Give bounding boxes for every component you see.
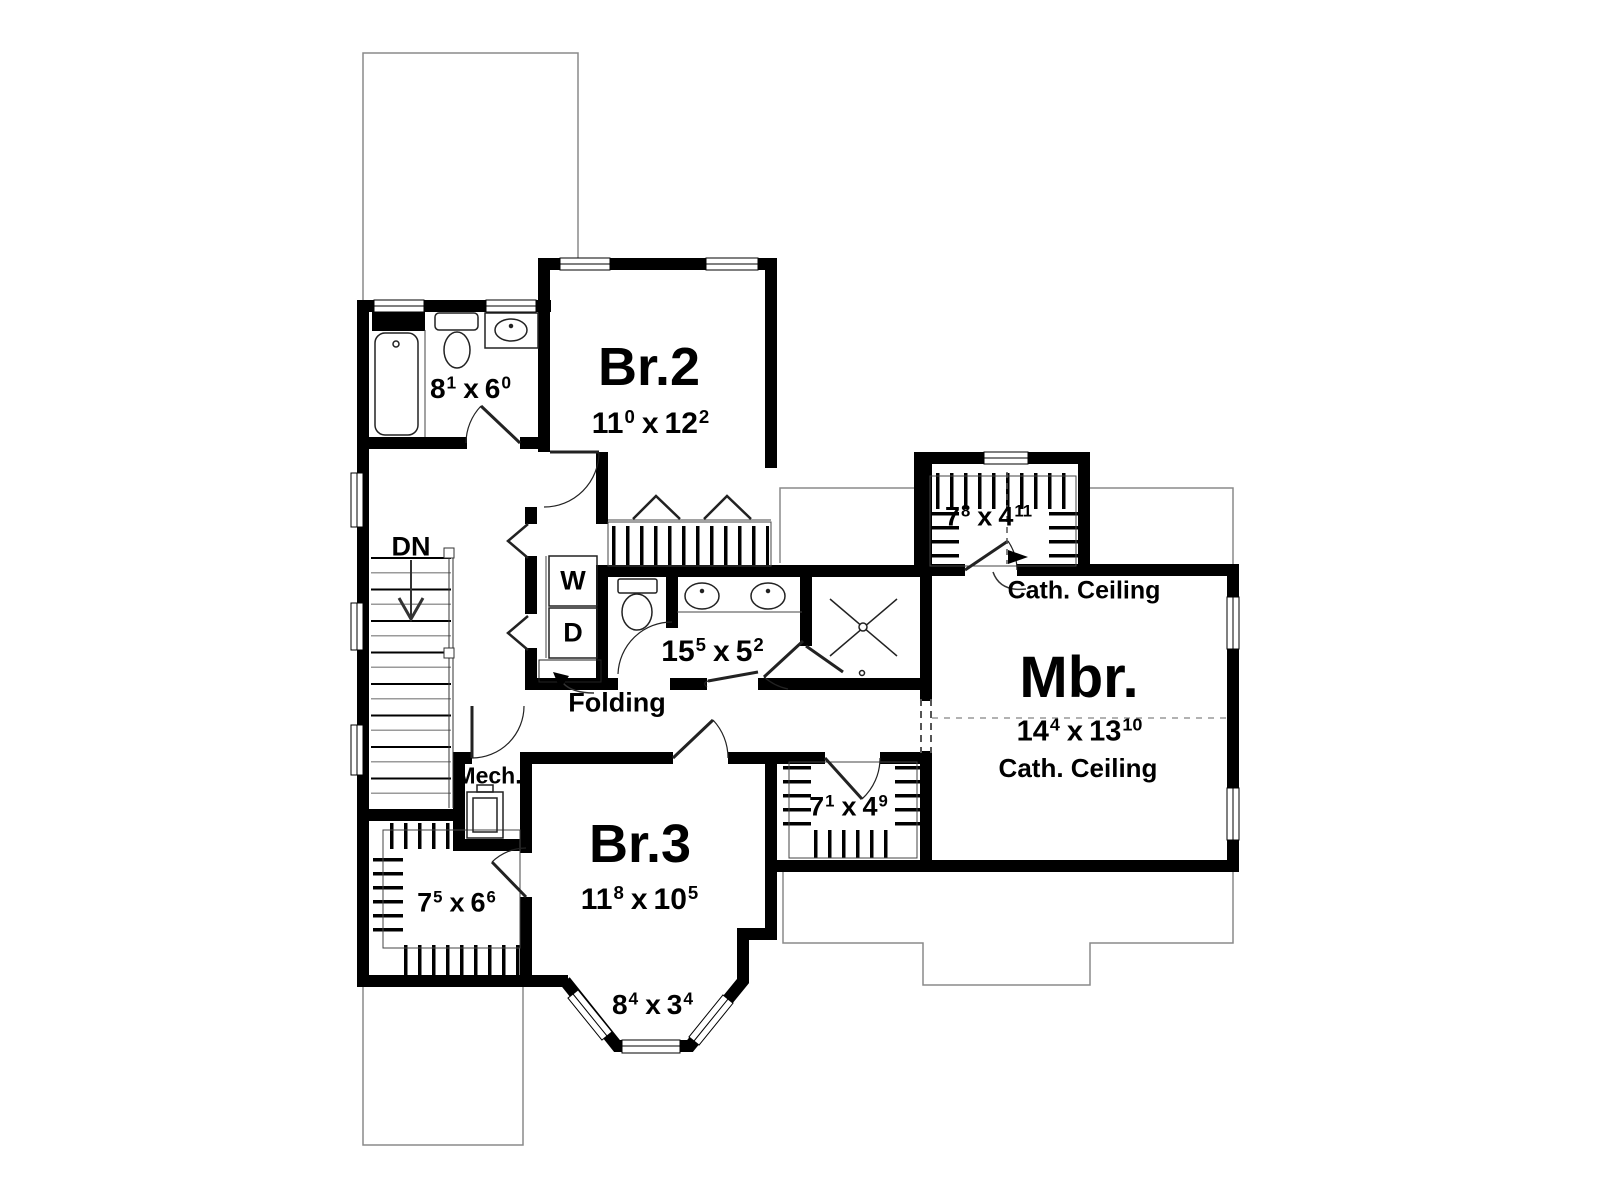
window-bay-front [622,1040,680,1053]
dim-a-sup: 1 [825,793,834,810]
dryer-label: D [563,620,583,647]
roof-outline-below-mbr [783,872,1233,985]
dim-a-sup: 8 [961,503,970,520]
window-bath-upper-2 [486,300,536,312]
sink-drain-upper-bath [510,325,513,328]
window-left-3 [351,725,363,775]
shower-drain [859,623,867,631]
dim-a-sup: 5 [433,889,442,906]
toilet-bowl-upper-bath [444,332,470,368]
br3-dim-label: 118x105 [581,885,699,915]
window-mbr-2 [1227,788,1239,840]
door-mech [472,706,524,758]
room-label-br2: Br.2 [598,340,700,394]
toilet-tank-upper-bath [435,313,478,330]
cath-ceiling-closet-label: Cath. Ceiling [1008,579,1161,604]
stair-newel-post-mid [444,648,454,658]
dim-x: x [841,792,856,822]
dim-a-sup: 4 [1050,716,1060,734]
door-upper-bath [466,406,520,443]
toilet-bowl-main-bath [622,594,652,630]
window-br2-2 [706,258,758,270]
dim-a: 15 [661,635,694,668]
cath-ceiling-mbr-label: Cath. Ceiling [999,755,1158,781]
toilet-tank-main-bath [618,579,657,593]
dim-b: 5 [736,635,753,668]
dim-x: x [463,373,479,404]
dim-b: 6 [485,373,501,404]
dim-b-sup: 6 [487,889,496,906]
dim-a: 11 [592,407,624,440]
bathtub [375,333,418,435]
dim-a-sup: 8 [613,884,623,903]
folding-label: Folding [568,690,665,717]
dim-a-sup: 1 [447,374,457,391]
stairs [399,548,454,808]
door-main-bath [705,672,758,687]
dim-x: x [642,407,659,440]
shower-valve-icon [860,671,865,676]
furnace-inner [473,798,497,832]
wall-tub-head-ledge [372,311,425,331]
closet-master-dim-label: 78x411 [945,504,1033,531]
dim-x: x [1067,716,1083,748]
dim-b: 10 [654,883,687,916]
closet-master-entry-arrow-icon [1008,550,1028,564]
sink-drain-main-bath-2 [767,590,770,593]
dim-a: 14 [1017,716,1049,748]
outline-br2-closet [608,522,771,566]
dim-b-sup: 11 [1014,503,1032,520]
window-left-2 [351,603,363,650]
dim-b-sup: 2 [699,408,709,427]
dim-a: 8 [430,373,446,404]
dim-x: x [977,502,992,532]
window-bath-upper-1 [374,300,424,312]
sink-cabinet-upper-bath [485,313,538,348]
door-br3 [673,720,728,758]
dim-b: 4 [863,792,878,822]
closet-bl-dim-label: 75x66 [417,890,497,917]
window-br2-1 [560,258,610,270]
dim-b: 6 [471,888,486,918]
dim-x: x [645,989,661,1020]
door-br2 [544,452,599,507]
floor-plan-page: DN 81x60 Br.2 110x122 W D Folding 155x52… [0,0,1600,1200]
dim-b-sup: 0 [501,374,511,391]
dim-a-sup: 0 [624,408,634,427]
window-mbr-1 [1227,597,1239,649]
dim-x: x [449,888,464,918]
dim-a: 7 [417,888,432,918]
dim-x: x [713,635,730,668]
closet-hall-dim-label: 71x49 [809,794,889,821]
dim-b: 4 [998,502,1013,532]
dim-a: 7 [809,792,824,822]
sink-bowl-main-bath-2 [751,583,785,609]
mech-label: Mech. [456,765,521,788]
tub-faucet-icon [393,341,399,347]
dim-x: x [631,883,648,916]
stair-newel-post-top [444,548,454,558]
dim-b-sup: 2 [753,636,763,655]
dim-a: 8 [612,989,628,1020]
roof-outline-bottom-left [363,987,523,1145]
dim-a-sup: 4 [629,990,639,1007]
main-bath-dim-label: 155x52 [661,637,764,667]
stairs-down-label: DN [392,534,431,561]
bifold-br2-closet [633,496,751,519]
sink-bowl-upper-bath [495,319,527,341]
dim-a: 7 [945,502,960,532]
sink-drain-main-bath-1 [701,590,704,593]
window-left-1 [351,473,363,527]
br2-dim-label: 110x122 [592,409,710,439]
bay-window-dim-label: 84x34 [612,991,694,1019]
room-label-mbr: Mbr. [1019,649,1138,707]
floor-plan-drawing [0,0,1600,1200]
upper-bath-dim-label: 81x60 [430,375,512,403]
dim-b-sup: 9 [879,793,888,810]
window-closet-master [984,452,1028,464]
dim-b: 3 [667,989,683,1020]
dim-b: 13 [1089,716,1121,748]
room-label-br3: Br.3 [589,817,691,871]
dim-a-sup: 5 [696,636,706,655]
washer-label: W [560,568,585,595]
sink-bowl-main-bath-1 [685,583,719,609]
roof-outline-above-mbr-right [1090,488,1233,566]
window-bay-right [689,995,733,1045]
dim-b-sup: 4 [683,990,693,1007]
mbr-dim-label: 144x1310 [1017,718,1144,747]
dim-b-sup: 5 [688,884,698,903]
window-bay-left [568,990,612,1040]
dim-b: 12 [665,407,698,440]
dim-b-sup: 10 [1122,716,1142,734]
door-closet-bottom-left [492,848,526,897]
dim-a: 11 [581,883,613,916]
roof-outline-above-mbr-left [780,488,917,563]
